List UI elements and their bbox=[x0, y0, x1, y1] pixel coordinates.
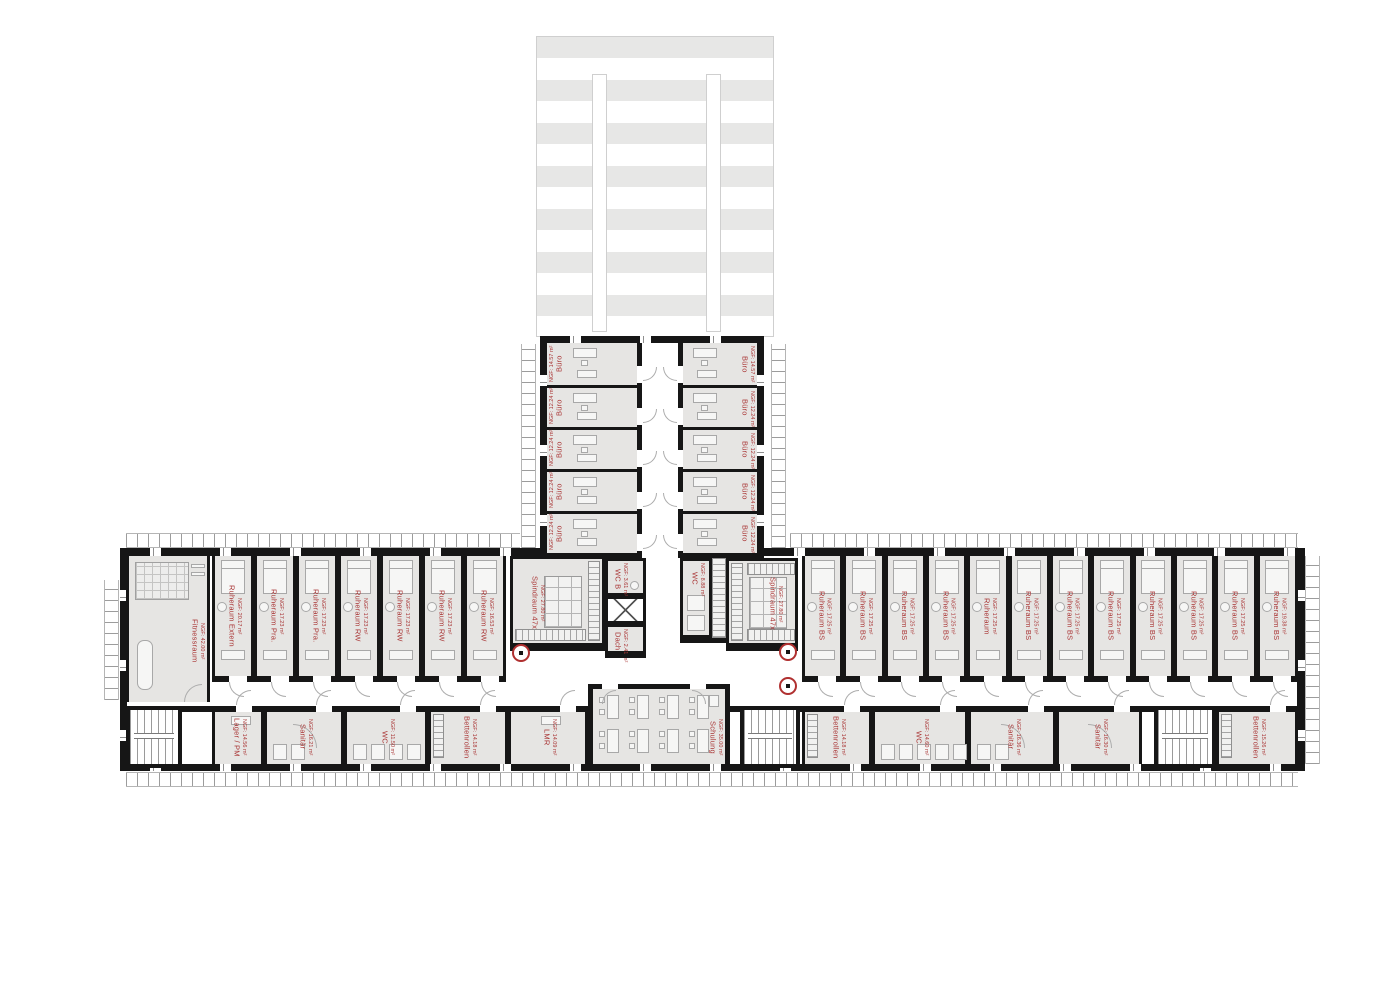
room-b-ro-area: NGF: 12.24 m² bbox=[549, 517, 555, 550]
dumbbell-symbol bbox=[191, 572, 205, 576]
elevator bbox=[605, 596, 646, 624]
bench-symbol bbox=[473, 650, 497, 660]
table-symbol bbox=[637, 729, 649, 753]
room-lmr: NGF: 14.09 m²LMR bbox=[508, 712, 588, 764]
room-wc-b-name: WC B bbox=[613, 563, 622, 595]
table-symbol bbox=[607, 729, 619, 753]
stairwell bbox=[126, 706, 182, 768]
room-b-ro-area: NGF: 12.24 m² bbox=[749, 433, 755, 466]
room-ruheraum-bs: NGF: 17.25 m²Ruheraum BS bbox=[1174, 556, 1215, 676]
room-b-ro: NGF: 12.24 m²Büro bbox=[683, 472, 757, 511]
room-b-ro-label: NGF: 12.24 m²Büro bbox=[549, 475, 567, 508]
sink-symbol bbox=[1055, 602, 1065, 612]
desk-symbol bbox=[693, 477, 717, 487]
room-ruheraum-bs: NGF: 17.25 m²Ruheraum BS bbox=[843, 556, 884, 676]
bench-symbol bbox=[1224, 650, 1248, 660]
bench-symbol bbox=[1017, 650, 1041, 660]
chair-symbol bbox=[581, 489, 588, 495]
room-ruheraum-rw: NGF: 17.23 m²Ruheraum RW bbox=[338, 556, 380, 676]
room-schulung-name: Schulung bbox=[708, 711, 717, 763]
chair-symbol bbox=[629, 709, 635, 715]
wall-topwing-north bbox=[540, 336, 764, 343]
sink-symbol bbox=[1014, 602, 1024, 612]
room-b-ro-label: NGF: 12.24 m²Büro bbox=[549, 517, 567, 550]
room-sanit-r: NGF: 16.21 m²Sanitär bbox=[264, 712, 344, 764]
facade-topwing-east bbox=[771, 344, 786, 548]
chair-symbol bbox=[659, 731, 665, 737]
wc-stall bbox=[273, 744, 287, 760]
shelf-symbol bbox=[1221, 714, 1232, 758]
wall-east bbox=[1297, 548, 1305, 771]
bench-grid bbox=[749, 577, 787, 629]
sink-symbol bbox=[1262, 602, 1272, 612]
room-ruheraum-bs: NGF: 17.25 m²Ruheraum BS bbox=[885, 556, 926, 676]
bench-symbol bbox=[1183, 650, 1207, 660]
room-wc: NGF: 8.88 m²WC bbox=[680, 558, 712, 638]
room-bettenrollen-name: Bettenrollen bbox=[1251, 714, 1260, 760]
room-spindraum-47x: NGF: 27.80 m²Spindraum 47x bbox=[726, 558, 798, 646]
door-arc bbox=[984, 682, 999, 697]
table-symbol bbox=[577, 496, 597, 504]
room-b-ro: NGF: 12.24 m²Büro bbox=[683, 430, 757, 469]
door-arc bbox=[940, 690, 955, 705]
column-marker bbox=[779, 643, 797, 661]
door-opening bbox=[637, 492, 642, 509]
chair-symbol bbox=[629, 731, 635, 737]
wc-stall bbox=[917, 744, 931, 760]
facade-west bbox=[104, 580, 119, 700]
room-ruheraum-pra: NGF: 17.23 m²Ruheraum Pra. bbox=[254, 556, 296, 676]
door-opening bbox=[637, 450, 642, 467]
door-arc bbox=[643, 409, 657, 423]
bed-symbol bbox=[1100, 560, 1124, 594]
bed-symbol bbox=[1141, 560, 1165, 594]
stair-landing bbox=[748, 733, 792, 739]
room-fitnessraum-label: NGF: 42.00 m²Fitnessraum bbox=[187, 596, 205, 686]
door-arc bbox=[1066, 682, 1081, 697]
chair-symbol bbox=[701, 531, 708, 537]
room-ruheraum-bs: NGF: 17.25 m²Ruheraum BS bbox=[802, 556, 843, 676]
facade-east bbox=[1305, 556, 1320, 764]
bed-symbol bbox=[263, 560, 287, 594]
room-b-ro-name: Büro bbox=[555, 475, 564, 508]
room-wc-label: NGF: 8.88 m²WC bbox=[689, 563, 705, 593]
facade-topwing-west bbox=[521, 344, 536, 548]
wc-stall bbox=[881, 744, 895, 760]
sink-symbol bbox=[259, 602, 269, 612]
wc-stall bbox=[687, 615, 705, 631]
bed-symbol bbox=[976, 560, 1000, 594]
chair-symbol bbox=[581, 531, 588, 537]
sink-symbol bbox=[890, 602, 900, 612]
door-opening bbox=[637, 534, 642, 551]
room-fitnessraum-area: NGF: 42.00 m² bbox=[199, 596, 205, 686]
table-symbol bbox=[577, 412, 597, 420]
door-arc bbox=[860, 682, 875, 697]
chair-symbol bbox=[701, 489, 708, 495]
chair-symbol bbox=[689, 709, 695, 715]
room-dach-name: Dach bbox=[613, 629, 622, 653]
room-ruheraum-bs: NGF: 17.25 m²Ruheraum BS bbox=[1091, 556, 1132, 676]
locker-row bbox=[747, 629, 795, 641]
wc-stall bbox=[899, 744, 913, 760]
door-opening bbox=[1114, 706, 1130, 712]
chair-symbol bbox=[701, 447, 708, 453]
sink-symbol bbox=[343, 602, 353, 612]
wc-stall bbox=[389, 744, 403, 760]
room-b-ro-area: NGF: 12.24 m² bbox=[549, 433, 555, 466]
room-bettenrollen-label: NGF: 15.26 m²Bettenrollen bbox=[1248, 714, 1266, 760]
table-symbol bbox=[667, 695, 679, 719]
wall-junction bbox=[680, 638, 726, 643]
bed-symbol bbox=[893, 560, 917, 594]
room-ruheraum-extern: NGF: 20.17 m²Ruheraum Extern bbox=[212, 556, 254, 676]
room-fitnessraum: NGF: 42.00 m²Fitnessraum bbox=[126, 556, 210, 702]
door-arc bbox=[643, 451, 657, 465]
desk-symbol bbox=[573, 435, 597, 445]
locker-row bbox=[588, 561, 600, 641]
sink-symbol bbox=[385, 602, 395, 612]
room-b-ro: NGF: 12.24 m²Büro bbox=[547, 472, 637, 511]
dumbbell-symbol bbox=[191, 564, 205, 568]
desk-symbol bbox=[573, 348, 597, 358]
room-bettenrollen-label: NGF: 14.18 m²Bettenrollen bbox=[459, 714, 477, 760]
table-symbol bbox=[577, 538, 597, 546]
bench-symbol bbox=[221, 650, 245, 660]
room-wc-b-area: NGF: 3.61 m² bbox=[622, 563, 628, 595]
door-opening bbox=[480, 706, 496, 712]
door-arc bbox=[293, 724, 317, 748]
stairwell bbox=[740, 706, 800, 768]
door-opening bbox=[844, 706, 860, 712]
room-bettenrollen-area: NGF: 15.26 m² bbox=[1260, 714, 1266, 760]
table-symbol bbox=[697, 370, 717, 378]
chair-symbol bbox=[629, 743, 635, 749]
chair-symbol bbox=[581, 447, 588, 453]
desk-symbol bbox=[541, 716, 561, 725]
wc-stall bbox=[353, 744, 367, 760]
chair-symbol bbox=[659, 709, 665, 715]
wc-stall bbox=[407, 744, 421, 760]
wall-topwing-west bbox=[540, 343, 547, 556]
door-arc bbox=[560, 690, 575, 705]
bench-symbol bbox=[1100, 650, 1124, 660]
door-arc bbox=[643, 493, 657, 507]
bed-symbol bbox=[1183, 560, 1207, 594]
wc-stall bbox=[371, 744, 385, 760]
room-bettenrollen-area: NGF: 14.18 m² bbox=[840, 714, 846, 760]
door-opening bbox=[400, 706, 416, 712]
sink-symbol bbox=[1179, 602, 1189, 612]
chair-symbol bbox=[659, 743, 665, 749]
chair-symbol bbox=[659, 697, 665, 703]
room-spindraum-47x: NGF: 27.80 m²Spindraum 47x bbox=[510, 556, 605, 646]
room-b-ro-label: NGF: 12.24 m²Büro bbox=[737, 517, 755, 550]
bench-symbol bbox=[305, 650, 329, 660]
roof-walkway bbox=[706, 74, 721, 332]
room-b-ro-area: NGF: 12.24 m² bbox=[749, 391, 755, 424]
bench-symbol bbox=[1059, 650, 1083, 660]
door-arc bbox=[439, 682, 454, 697]
door-arc bbox=[663, 535, 677, 549]
room-b-ro-name: Büro bbox=[740, 475, 749, 508]
wall-junction bbox=[605, 654, 646, 658]
wc-stall bbox=[687, 595, 705, 611]
door-opening bbox=[236, 706, 252, 712]
door-arc bbox=[663, 451, 677, 465]
desk-symbol bbox=[693, 435, 717, 445]
door-opening bbox=[1270, 706, 1286, 712]
room-ruheraum-pra: NGF: 17.23 m²Ruheraum Pra. bbox=[296, 556, 338, 676]
room-b-ro-name: Büro bbox=[555, 517, 564, 550]
room-b-ro-area: NGF: 12.24 m² bbox=[749, 475, 755, 508]
table-symbol bbox=[697, 496, 717, 504]
chair-symbol bbox=[581, 360, 588, 366]
corridor-opening bbox=[642, 553, 678, 558]
room-dach: NGF: 2.41 m²Dach bbox=[605, 624, 646, 654]
table-symbol bbox=[667, 729, 679, 753]
bench-symbol bbox=[935, 650, 959, 660]
bed-symbol bbox=[811, 560, 835, 594]
bench-symbol bbox=[852, 650, 876, 660]
bed-symbol bbox=[305, 560, 329, 594]
wc-stall bbox=[977, 744, 991, 760]
room-wc-b-label: NGF: 3.61 m²WC B bbox=[612, 563, 628, 595]
room-b-ro-area: NGF: 12.24 m² bbox=[749, 517, 755, 550]
room-b-ro-label: NGF: 12.24 m²Büro bbox=[549, 433, 567, 466]
room-ruheraum-bs: NGF: 17.25 m²Ruheraum BS bbox=[1215, 556, 1256, 676]
sink-symbol bbox=[972, 602, 982, 612]
room-bettenrollen-label: NGF: 14.18 m²Bettenrollen bbox=[828, 714, 846, 760]
bed-symbol bbox=[852, 560, 876, 594]
room-fitnessraum-name: Fitnessraum bbox=[190, 596, 199, 686]
sink-symbol bbox=[301, 602, 311, 612]
stair-landing bbox=[134, 733, 174, 739]
door-opening bbox=[316, 706, 332, 712]
door-opening bbox=[678, 366, 683, 383]
table-symbol bbox=[697, 729, 709, 753]
table-symbol bbox=[577, 370, 597, 378]
room-bettenrollen: NGF: 14.18 m²Bettenrollen bbox=[428, 712, 508, 764]
shelf-symbol bbox=[433, 714, 444, 758]
wc-stall bbox=[935, 744, 949, 760]
sink-symbol bbox=[427, 602, 437, 612]
room-b-ro-label: NGF: 14.57 m²Büro bbox=[737, 346, 755, 382]
desk-symbol bbox=[573, 477, 597, 487]
locker-row bbox=[515, 629, 586, 641]
door-arc bbox=[844, 690, 859, 705]
room-bettenrollen-name: Bettenrollen bbox=[462, 714, 471, 760]
room-b-ro-label: NGF: 12.24 m²Büro bbox=[737, 433, 755, 466]
door-arc bbox=[271, 682, 286, 697]
sink-symbol bbox=[1220, 602, 1230, 612]
wc-stall bbox=[953, 744, 967, 760]
desk-symbol bbox=[693, 519, 717, 529]
door-opening bbox=[602, 684, 618, 689]
sink-symbol bbox=[848, 602, 858, 612]
toilet-symbol bbox=[630, 581, 639, 590]
room-b-ro-area: NGF: 14.57 m² bbox=[549, 346, 555, 382]
locker-row bbox=[747, 563, 795, 575]
door-arc bbox=[818, 682, 833, 697]
room-wc: NGF: 14.60 m²WC bbox=[872, 712, 968, 764]
room-b-ro-name: Büro bbox=[740, 517, 749, 550]
shelf-symbol bbox=[807, 714, 818, 758]
table-symbol bbox=[697, 454, 717, 462]
bed-symbol bbox=[473, 560, 497, 594]
room-ruheraum-bs: NGF: 17.25 m²Ruheraum BS bbox=[926, 556, 967, 676]
bed-symbol bbox=[1224, 560, 1248, 594]
room-b-ro: NGF: 14.57 m²Büro bbox=[547, 343, 637, 385]
room-b-ro-name: Büro bbox=[740, 346, 749, 382]
room-b-ro-name: Büro bbox=[555, 346, 564, 382]
door-arc bbox=[1149, 682, 1164, 697]
facade-north-east bbox=[790, 533, 1298, 548]
bed-symbol bbox=[1265, 560, 1289, 594]
room-b-ro-name: Büro bbox=[555, 433, 564, 466]
room-wc-area: NGF: 8.88 m² bbox=[699, 563, 705, 593]
door-arc bbox=[1088, 724, 1112, 748]
door-arc bbox=[643, 367, 657, 381]
door-arc bbox=[1190, 682, 1205, 697]
wall-north-east bbox=[764, 548, 1304, 556]
door-opening bbox=[637, 408, 642, 425]
door-arc bbox=[1270, 690, 1285, 705]
room-wc-name: WC bbox=[690, 563, 699, 593]
facade-south bbox=[126, 772, 1298, 787]
room-lager-pm: NGF: 14.56 m²Lager / PM bbox=[212, 712, 264, 764]
door-arc bbox=[901, 682, 916, 697]
room-dach-label: NGF: 2.41 m²Dach bbox=[612, 629, 628, 653]
room-ruheraum-rw: NGF: 16.53 m²Ruheraum RW bbox=[464, 556, 506, 676]
chair-symbol bbox=[629, 697, 635, 703]
door-arc bbox=[480, 690, 495, 705]
table-symbol bbox=[697, 538, 717, 546]
door-arc bbox=[663, 409, 677, 423]
floor-plan: NGF: 14.57 m²BüroNGF: 12.24 m²BüroNGF: 1… bbox=[0, 0, 1400, 990]
room-ruheraum-bs: NGF: 17.25 m²Ruheraum BS bbox=[1133, 556, 1174, 676]
bed-symbol bbox=[431, 560, 455, 594]
chair-symbol bbox=[689, 743, 695, 749]
door-opening bbox=[690, 684, 706, 689]
room-dach-area: NGF: 2.41 m² bbox=[622, 629, 628, 653]
stair-landing bbox=[1162, 733, 1208, 739]
door-arc bbox=[643, 535, 657, 549]
bench-symbol bbox=[1265, 650, 1289, 660]
room-sanit-r: NGF: 16.30 m²Sanitär bbox=[1056, 712, 1142, 764]
room-b-ro-label: NGF: 14.57 m²Büro bbox=[549, 346, 567, 382]
chair-symbol bbox=[701, 360, 708, 366]
room-b-ro-label: NGF: 12.24 m²Büro bbox=[737, 475, 755, 508]
door-opening bbox=[637, 366, 642, 383]
door-opening bbox=[678, 534, 683, 551]
room-bettenrollen: NGF: 14.18 m²Bettenrollen bbox=[802, 712, 872, 764]
bench-symbol bbox=[1141, 650, 1165, 660]
bench-symbol bbox=[137, 640, 153, 690]
table-symbol bbox=[577, 454, 597, 462]
chair-symbol bbox=[599, 709, 605, 715]
room-b-ro: NGF: 14.57 m²Büro bbox=[683, 343, 757, 385]
room-ruheraum-bs: NGF: 19.38 m²Ruheraum BS bbox=[1257, 556, 1298, 676]
facade-north-west bbox=[126, 533, 520, 548]
desk-symbol bbox=[231, 716, 251, 725]
locker-row bbox=[731, 563, 743, 641]
room-wc: NGF: 11.50 m²WC bbox=[344, 712, 428, 764]
room-b-ro-area: NGF: 12.24 m² bbox=[549, 391, 555, 424]
room-bettenrollen-area: NGF: 14.18 m² bbox=[471, 714, 477, 760]
room-sanit-r: NGF: 16.36 m²Sanitär bbox=[968, 712, 1056, 764]
chair-symbol bbox=[581, 405, 588, 411]
bench-symbol bbox=[811, 650, 835, 660]
sink-symbol bbox=[931, 602, 941, 612]
stairwell bbox=[1154, 706, 1216, 768]
sink-symbol bbox=[469, 602, 479, 612]
roof-area bbox=[536, 36, 774, 337]
room-b-ro-area: NGF: 14.57 m² bbox=[749, 346, 755, 382]
door-arc bbox=[1232, 682, 1247, 697]
room-bettenrollen: NGF: 15.26 m²Bettenrollen bbox=[1216, 712, 1298, 764]
exercise-mat bbox=[135, 562, 189, 600]
door-opening bbox=[678, 492, 683, 509]
room-ruheraum-bs: NGF: 17.25 m²Ruheraum BS bbox=[1009, 556, 1050, 676]
room-b-ro: NGF: 12.24 m²Büro bbox=[683, 388, 757, 427]
desk-symbol bbox=[573, 519, 597, 529]
roof-walkway bbox=[592, 74, 607, 332]
room-b-ro-area: NGF: 12.24 m² bbox=[549, 475, 555, 508]
bench-symbol bbox=[263, 650, 287, 660]
room-b-ro: NGF: 12.24 m²Büro bbox=[683, 514, 757, 553]
bed-symbol bbox=[347, 560, 371, 594]
room-b-ro-label: NGF: 12.24 m²Büro bbox=[549, 391, 567, 424]
sink-symbol bbox=[1096, 602, 1106, 612]
room-b-ro-name: Büro bbox=[740, 433, 749, 466]
wall-south bbox=[120, 764, 1304, 771]
room-b-ro-name: Büro bbox=[555, 391, 564, 424]
bench-symbol bbox=[431, 650, 455, 660]
room-b-ro: NGF: 12.24 m²Büro bbox=[547, 430, 637, 469]
room-schulung-area: NGF: 35.00 m² bbox=[717, 711, 723, 763]
room-ruheraum-rw: NGF: 17.23 m²Ruheraum RW bbox=[380, 556, 422, 676]
table-symbol bbox=[637, 695, 649, 719]
bench-symbol bbox=[389, 650, 413, 660]
wall-topwing-east bbox=[757, 343, 764, 556]
room-wc-b: NGF: 3.61 m²WC B bbox=[605, 558, 646, 596]
door-opening bbox=[678, 450, 683, 467]
chair-symbol bbox=[599, 731, 605, 737]
door-arc bbox=[1001, 724, 1025, 748]
sink-symbol bbox=[1138, 602, 1148, 612]
sink-symbol bbox=[217, 602, 227, 612]
bed-symbol bbox=[1017, 560, 1041, 594]
door-arc bbox=[355, 682, 370, 697]
door-opening bbox=[678, 408, 683, 425]
desk-symbol bbox=[693, 348, 717, 358]
chair-symbol bbox=[701, 405, 708, 411]
room-ruheraum-bs: NGF: 17.25 m²Ruheraum BS bbox=[1050, 556, 1091, 676]
door-arc bbox=[663, 367, 677, 381]
bench-grid bbox=[544, 576, 582, 628]
door-arc bbox=[663, 493, 677, 507]
chair-symbol bbox=[689, 731, 695, 737]
door-opening bbox=[560, 706, 576, 712]
door-opening bbox=[940, 706, 956, 712]
lectern-symbol bbox=[709, 695, 719, 707]
door-opening bbox=[1028, 706, 1044, 712]
room-b-ro-label: NGF: 12.24 m²Büro bbox=[737, 391, 755, 424]
room-ruheraum-rw: NGF: 17.23 m²Ruheraum RW bbox=[422, 556, 464, 676]
room-b-ro-name: Büro bbox=[740, 391, 749, 424]
wall-north-west bbox=[120, 548, 540, 556]
